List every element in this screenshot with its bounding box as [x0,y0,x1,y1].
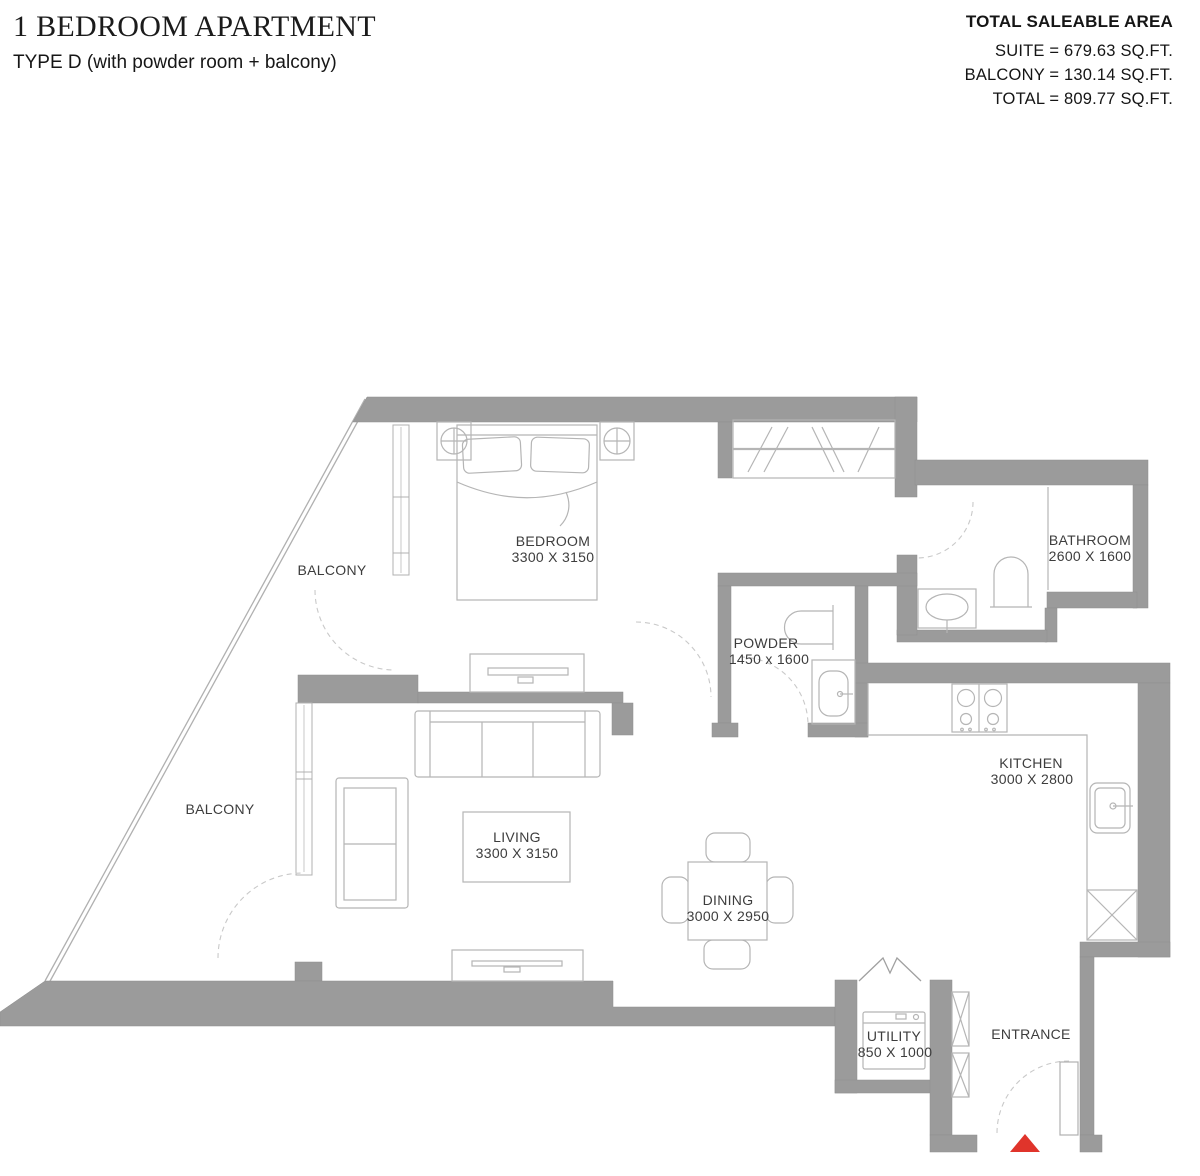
entrance-door-arc [997,1061,1069,1133]
bathroom-sink-icon [918,589,976,633]
nightstand-right-icon [600,422,634,460]
dresser-icon [470,654,584,692]
kitchen-label: KITCHEN [999,755,1063,771]
dining-dims: 3000 X 2950 [687,908,770,924]
shaft-upper-icon [952,992,969,1046]
entrance-label: ENTRANCE [991,1026,1070,1042]
bathroom-toilet-icon [990,557,1032,607]
powder-door-arc [740,657,808,725]
bedroom-balcony-door-arc [315,590,395,670]
dining-chair-left-icon [662,877,689,923]
living-dims: 3300 X 3150 [476,845,559,861]
dining-label: DINING [703,892,754,908]
entrance-marker-icon [1010,1134,1040,1152]
bathroom-dims: 2600 X 1600 [1049,548,1132,564]
utility-label: UTILITY [867,1028,922,1044]
bedroom-door-arc [636,622,711,697]
tv-console-icon [452,950,583,981]
living-label: LIVING [493,829,541,845]
dining-chair-top-icon [706,833,750,862]
shaft-lower-icon [952,1053,969,1097]
balcony-window-icon [393,425,409,575]
nightstand-left-icon [437,422,471,460]
fridge-icon [1087,890,1137,940]
bed-icon [457,425,597,600]
dining-chair-right-icon [766,877,793,923]
kitchen-dims: 3000 X 2800 [991,771,1074,787]
sofa-icon [415,711,600,777]
entrance-door-leaf [1060,1062,1078,1135]
balcony-lower-label: BALCONY [185,801,254,817]
floor-plan-page: 1 BEDROOM APARTMENT TYPE D (with powder … [0,0,1200,1176]
powder-label: POWDER [734,635,799,651]
bathroom-door-arc [917,502,973,558]
living-balcony-door-arc [218,873,303,958]
powder-sink-icon [812,660,855,724]
bedroom-dims: 3300 X 3150 [512,549,595,565]
bedroom-label: BEDROOM [516,533,590,549]
bifold-door-icon [859,958,921,981]
powder-dims: 1450 x 1600 [729,651,809,667]
dining-chair-bottom-icon [704,940,750,969]
living-balcony-window-icon [296,703,312,875]
kitchen-sink-icon [1090,783,1133,833]
balcony-upper-label: BALCONY [297,562,366,578]
utility-dims: 850 X 1000 [858,1044,933,1060]
floor-plan-drawing: BALCONY BALCONY BEDROOM 3300 X 3150 BATH… [0,0,1200,1176]
bathroom-label: BATHROOM [1049,532,1131,548]
armchair-icon [336,778,408,908]
stove-icon [952,684,1007,732]
wardrobe-icon [733,420,895,478]
